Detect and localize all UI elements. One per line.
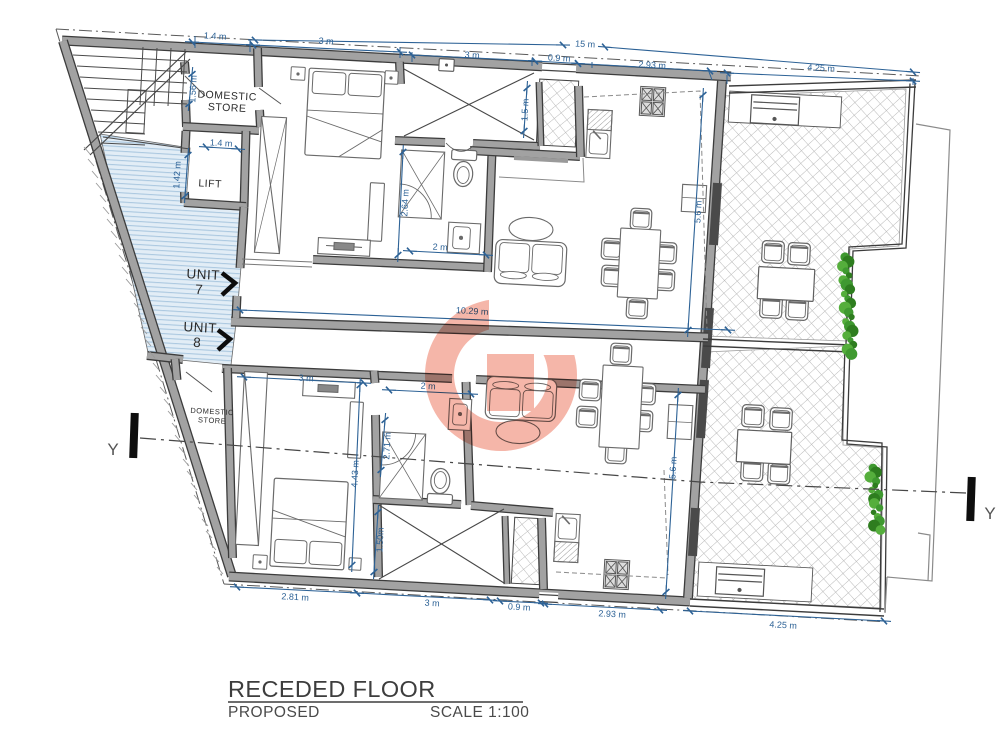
svg-text:0.9 m: 0.9 m bbox=[548, 52, 571, 63]
svg-text:1.5 m: 1.5 m bbox=[519, 98, 530, 121]
svg-text:PROPOSED: PROPOSED bbox=[228, 704, 320, 721]
svg-text:3 m: 3 m bbox=[464, 50, 480, 61]
svg-text:1.4 m: 1.4 m bbox=[204, 30, 227, 41]
svg-text:Y: Y bbox=[107, 440, 118, 459]
svg-text:4.25 m: 4.25 m bbox=[807, 62, 835, 73]
svg-text:STORE: STORE bbox=[198, 415, 227, 425]
svg-text:15 m: 15 m bbox=[575, 38, 596, 49]
svg-text:2.71 m: 2.71 m bbox=[381, 432, 392, 460]
svg-text:1.4 m: 1.4 m bbox=[210, 137, 233, 148]
svg-text:8: 8 bbox=[193, 335, 202, 350]
svg-text:1.50m: 1.50m bbox=[374, 527, 385, 553]
svg-text:5.6 m: 5.6 m bbox=[692, 200, 703, 223]
svg-text:1.56 m: 1.56 m bbox=[187, 75, 198, 103]
svg-text:1.42 m: 1.42 m bbox=[171, 161, 182, 189]
svg-text:3 m: 3 m bbox=[424, 598, 440, 609]
svg-text:RECEDED FLOOR: RECEDED FLOOR bbox=[228, 676, 436, 702]
svg-text:Y: Y bbox=[984, 504, 995, 523]
svg-text:0.9 m: 0.9 m bbox=[508, 601, 531, 612]
svg-text:2.93 m: 2.93 m bbox=[638, 59, 666, 70]
svg-text:2.81 m: 2.81 m bbox=[281, 591, 309, 602]
svg-text:5.6 m: 5.6 m bbox=[667, 456, 678, 479]
svg-text:SCALE 1:100: SCALE 1:100 bbox=[430, 704, 529, 721]
svg-text:7: 7 bbox=[195, 282, 204, 297]
svg-text:UNIT: UNIT bbox=[183, 319, 217, 336]
svg-text:4.43 m: 4.43 m bbox=[349, 460, 360, 488]
svg-text:3 m: 3 m bbox=[298, 373, 314, 384]
svg-text:LIFT: LIFT bbox=[198, 177, 222, 190]
svg-text:4.25 m: 4.25 m bbox=[769, 619, 797, 630]
svg-text:2 m: 2 m bbox=[432, 242, 448, 253]
svg-text:2.93 m: 2.93 m bbox=[598, 608, 626, 619]
svg-text:STORE: STORE bbox=[208, 101, 247, 115]
svg-text:UNIT: UNIT bbox=[186, 266, 220, 283]
svg-text:2.64 m: 2.64 m bbox=[399, 189, 410, 217]
